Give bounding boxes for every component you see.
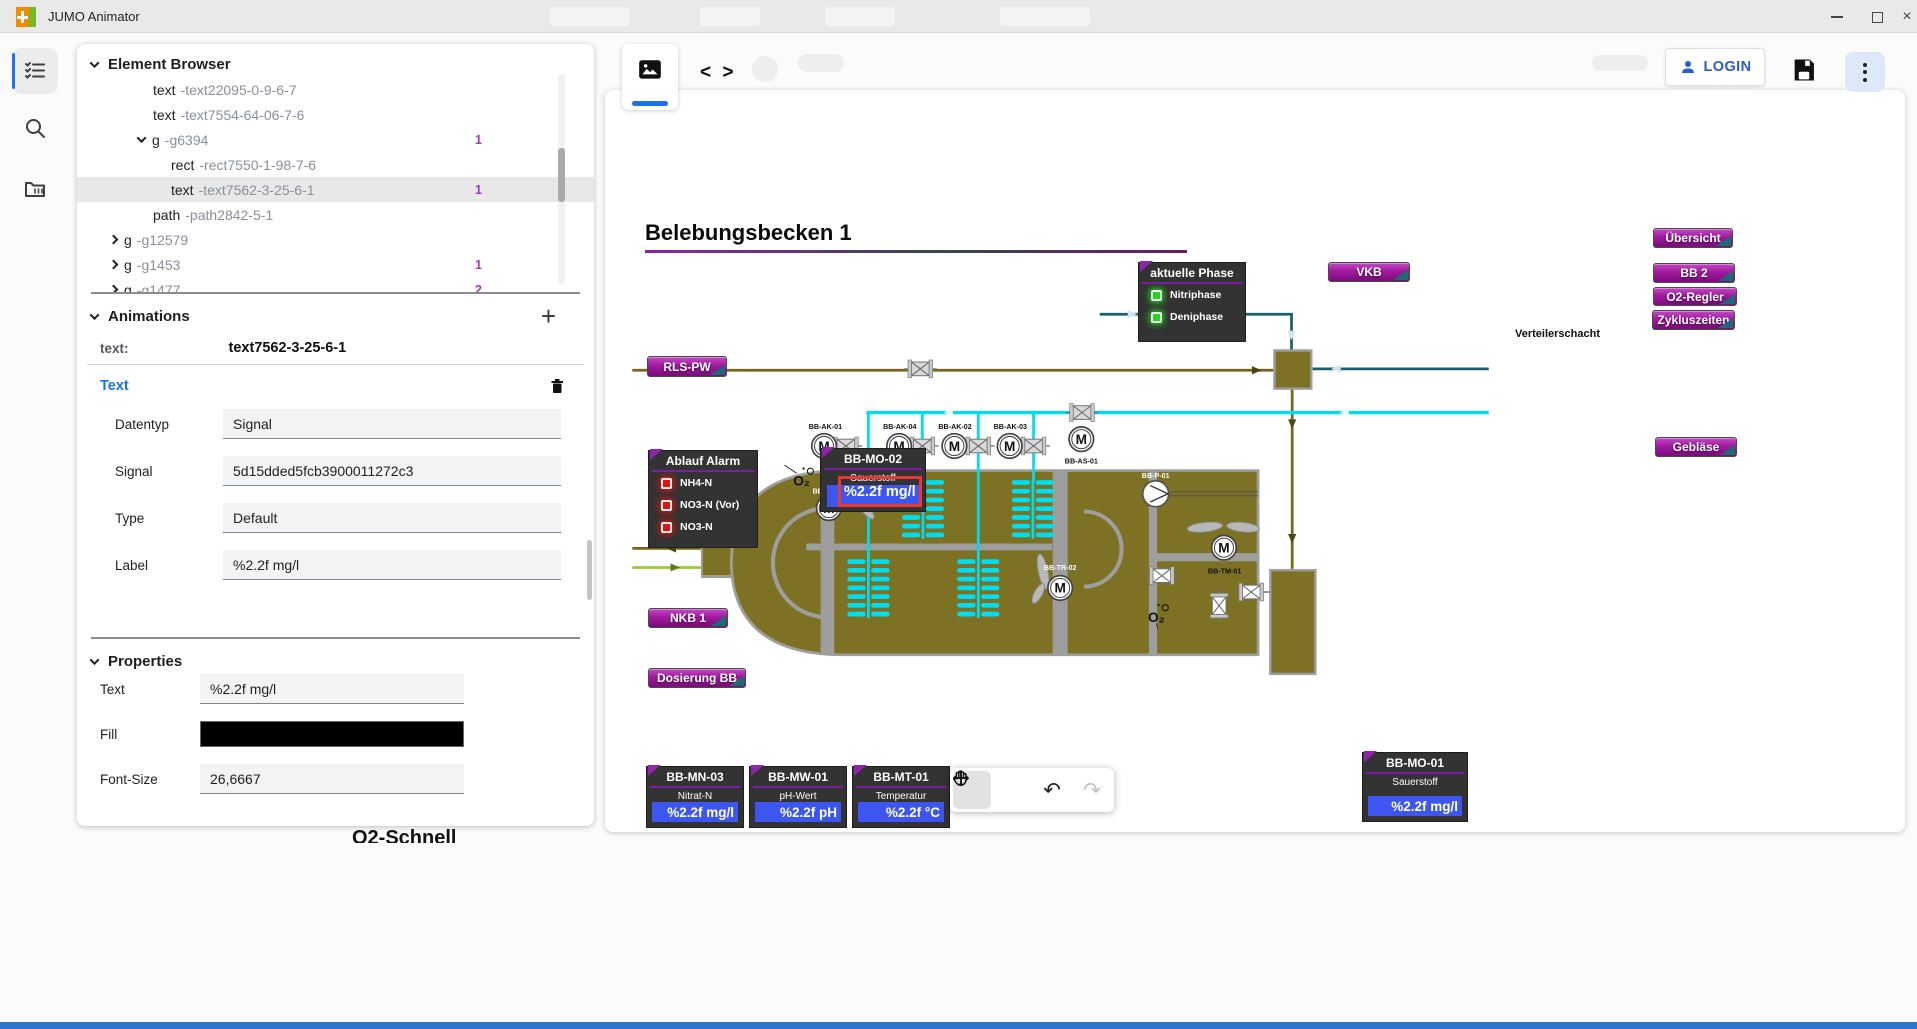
close-button[interactable]: ×	[1892, 5, 1917, 29]
property-text-row: Text	[77, 674, 594, 704]
nav-button-dosierung-bb[interactable]: Dosierung BB	[648, 668, 746, 688]
sensor-sub: Sauerstoff	[1363, 774, 1467, 788]
node-id: -path2842-5-1	[185, 207, 273, 223]
field-label: Signal	[77, 464, 223, 479]
element-browser-title: Element Browser	[108, 56, 231, 73]
add-animation-button[interactable]: +	[541, 306, 556, 326]
titlebar-ghost	[825, 7, 895, 26]
node-id: -rect7550-1-98-7-6	[199, 157, 316, 173]
node-tag: text	[171, 182, 194, 198]
nav-button--bersicht[interactable]: Übersicht	[1653, 228, 1733, 248]
sensor-sub: pH-Wert	[750, 788, 846, 802]
target-label: text:	[100, 341, 129, 356]
animation-group-row: Text	[100, 373, 594, 399]
led-red-icon	[661, 478, 672, 489]
inspector-panel: Element Browser text-text22095-0-9-6-7te…	[77, 44, 594, 826]
animation-fields: DatentypSignalTypeLabel	[77, 409, 594, 580]
tree-row-text-text22095-0-9-6-7[interactable]: text-text22095-0-9-6-7	[77, 77, 594, 102]
sensor-value: %2.2f pH	[755, 802, 841, 822]
chevron-right-icon[interactable]	[109, 235, 119, 245]
tree-row-g-g6394[interactable]: g-g63941	[77, 127, 594, 152]
properties-header[interactable]: Properties	[77, 649, 594, 674]
search-icon[interactable]	[23, 116, 47, 140]
valve-icon[interactable]	[1210, 589, 1228, 622]
sensor-sub: Nitrat-N	[647, 788, 743, 802]
animations-section: Animations + text: text7562-3-25-6-1 Tex…	[77, 294, 594, 637]
divider	[87, 364, 584, 365]
undo-button[interactable]: ↶	[1033, 771, 1071, 809]
kebab-icon	[1863, 63, 1867, 82]
node-id: -g6394	[165, 132, 209, 148]
phase-box-title: aktuelle Phase	[1142, 263, 1242, 284]
sensor-value: %2.2f mg/l	[652, 802, 738, 822]
title-underline	[645, 250, 1187, 253]
motor-bb-as-01[interactable]: M	[1069, 427, 1094, 452]
phase-status-box: aktuelle Phase NitriphaseDeniphase	[1138, 262, 1246, 342]
svg-text:O₂: O₂	[793, 474, 810, 489]
animation-count-badge: 1	[475, 183, 482, 197]
jumo-logo-icon	[16, 7, 36, 27]
nav-button-o2-regler[interactable]: O2-Regler	[1653, 287, 1737, 306]
animation-target-row: text: text7562-3-25-6-1	[100, 336, 594, 360]
equipment-label-bb-ak-03: BB-AK-03	[994, 423, 1027, 431]
field-input-label[interactable]	[223, 550, 561, 580]
property-label: Fill	[77, 727, 200, 742]
login-label: LOGIN	[1704, 59, 1752, 75]
animation-field-signal: Signal	[77, 456, 594, 486]
image-icon	[637, 57, 663, 83]
animation-group-link[interactable]: Text	[100, 378, 129, 394]
chevron-down-icon	[90, 310, 100, 320]
disabled-tool	[798, 54, 844, 72]
nav-button-nkb-1[interactable]: NKB 1	[648, 608, 728, 628]
nav-button-gebl-se[interactable]: Gebläse	[1655, 437, 1737, 457]
equipment-label-bb-p-01: BB-P-01	[1142, 472, 1170, 480]
svg-text:M: M	[949, 439, 960, 454]
verteilerschacht-box[interactable]	[1274, 350, 1311, 388]
sensor-sub: Temperatur	[853, 788, 949, 802]
chevron-right-icon[interactable]	[109, 285, 119, 292]
sensor-title: BB-MW-01	[753, 767, 843, 788]
tree-row-text-text7562-3-25-6-1[interactable]: text-text7562-3-25-6-11	[77, 177, 594, 202]
node-tag: g	[152, 132, 160, 148]
side-tank[interactable]	[1270, 570, 1315, 674]
property-fontsize-input[interactable]	[200, 764, 464, 794]
chevron-down-icon	[90, 655, 100, 665]
alarm-box-title: Ablauf Alarm	[652, 451, 754, 472]
sensor-title: BB-MT-01	[856, 767, 946, 788]
element-browser-header[interactable]: Element Browser	[77, 52, 594, 77]
disabled-tool	[1592, 55, 1648, 71]
equipment-label-bb-ak-02: BB-AK-02	[938, 423, 971, 431]
node-tag: path	[153, 207, 180, 223]
app-window: JUMO Animator × Element Browser text-tex…	[0, 0, 1917, 1029]
taskbar-edge	[0, 1022, 1917, 1029]
field-input-type[interactable]	[223, 503, 561, 533]
plant-diagram: MMMMMMMMO₂O₂BB-AK-01BB-AK-04BB-AK-02BB-A…	[605, 90, 1905, 832]
panel-scrollbar[interactable]	[587, 540, 592, 600]
field-label: Type	[77, 511, 223, 526]
sensor-value: %2.2f °C	[858, 802, 944, 822]
background-text-fragment: O2-Schnell	[352, 827, 522, 843]
sensor-value: %2.2f mg/l	[844, 484, 916, 500]
nav-button-zykluszeiten[interactable]: Zykluszeiten	[1652, 310, 1735, 330]
element-tree: text-text22095-0-9-6-7text-text7554-64-0…	[77, 77, 594, 292]
chevron-right-icon[interactable]	[109, 260, 119, 270]
property-label: Text	[77, 682, 200, 697]
svg-text:M: M	[1218, 540, 1229, 555]
equipment-label-bb-as-01: BB-AS-01	[1065, 458, 1098, 466]
phase-item-Nitriphase: Nitriphase	[1139, 284, 1245, 306]
properties-title: Properties	[108, 653, 182, 670]
node-tag: g	[124, 232, 132, 248]
minimize-button[interactable]	[1822, 5, 1852, 29]
valve-icon[interactable]	[1145, 567, 1178, 585]
svg-text:M: M	[1004, 439, 1015, 454]
chevron-down-icon	[90, 58, 100, 68]
titlebar-ghost	[700, 7, 760, 26]
tree-row-rect-rect7550-1-98-7-6[interactable]: rect-rect7550-1-98-7-6	[77, 152, 594, 177]
sensor-box-bb-mw-01[interactable]: BB-MW-01 pH-Wert %2.2f pH	[749, 766, 847, 828]
node-tag: rect	[171, 157, 194, 173]
titlebar-ghost	[550, 7, 630, 26]
property-label: Font-Size	[77, 772, 200, 787]
titlebar-ghost	[1000, 7, 1090, 26]
redo-button[interactable]: ↷	[1073, 771, 1111, 809]
led-red-icon	[661, 522, 672, 533]
move-tool[interactable]	[993, 771, 1031, 809]
nav-button-rls-pw[interactable]: RLS-PW	[647, 356, 727, 377]
property-fill-row: Fill	[77, 721, 594, 747]
node-id: -g1477	[137, 282, 181, 293]
delete-animation-icon[interactable]	[548, 377, 566, 395]
tree-row-g-g12579[interactable]: g-g12579	[77, 227, 594, 252]
alarm-list: NH4-NNO3-N (Vor)NO3-N	[649, 472, 757, 538]
valve-icon[interactable]	[1066, 404, 1099, 422]
node-tag: text	[153, 107, 176, 123]
animation-count-badge: 1	[475, 258, 482, 272]
svg-text:M: M	[1076, 432, 1087, 447]
alarm-status-box: Ablauf Alarm NH4-NNO3-N (Vor)NO3-N	[648, 450, 758, 548]
canvas-toolbar: ↶ ↷	[950, 768, 1114, 812]
led-green-icon	[1151, 312, 1162, 323]
equipment-label-bb-ak-04: BB-AK-04	[883, 423, 916, 431]
tree-row-g-g1453[interactable]: g-g14531	[77, 252, 594, 277]
code-view-icon[interactable]: < >	[700, 62, 736, 84]
sensor-title: BB-MO-02	[824, 449, 922, 470]
animation-count-badge: 1	[475, 133, 482, 147]
window-title: JUMO Animator	[48, 9, 140, 24]
property-text-input[interactable]	[200, 674, 464, 704]
field-input-datentyp[interactable]	[223, 409, 561, 439]
valve-icon[interactable]	[1235, 583, 1268, 601]
fill-swatch[interactable]	[200, 721, 464, 747]
led-red-icon	[661, 500, 672, 511]
element-browser-section: Element Browser text-text22095-0-9-6-7te…	[77, 44, 594, 292]
diagram-title: Belebungsbecken 1	[645, 220, 852, 246]
tree-row-text-text7554-64-06-7-6[interactable]: text-text7554-64-06-7-6	[77, 102, 594, 127]
login-button[interactable]: LOGIN	[1665, 48, 1765, 86]
node-id: -g1453	[137, 257, 181, 273]
motor-bb-tm-01[interactable]: M	[1212, 535, 1237, 560]
diagram-canvas[interactable]: MMMMMMMMO₂O₂BB-AK-01BB-AK-04BB-AK-02BB-A…	[605, 90, 1905, 832]
properties-section: Properties Text Fill Font-Size	[77, 639, 594, 794]
save-icon[interactable]	[1790, 56, 1818, 84]
nav-button-vkb[interactable]: VKB	[1328, 262, 1410, 282]
field-label: Datentyp	[77, 417, 223, 432]
motor-bb-ak-03[interactable]: M	[997, 434, 1022, 459]
equipment-label-bb-tr-02: BB-TR-02	[1044, 564, 1077, 572]
alarm-item-NO3-N (Vor): NO3-N (Vor)	[649, 494, 757, 516]
equipment-label-bb-ak-01: BB-AK-01	[809, 423, 842, 431]
node-id: -text7554-64-06-7-6	[181, 107, 305, 123]
sensor-box-bb-mn-03[interactable]: BB-MN-03 Nitrat-N %2.2f mg/l	[646, 766, 744, 828]
animations-header[interactable]: Animations +	[77, 304, 594, 328]
property-fontsize-row: Font-Size	[77, 764, 594, 794]
motor-bb-tr-02[interactable]: M	[1048, 576, 1073, 601]
rail-active-indicator	[12, 53, 15, 89]
library-icon[interactable]	[23, 176, 47, 200]
sensor-box-bb-mo-01[interactable]: BB-MO-01 Sauerstoff %2.2f mg/l	[1362, 752, 1468, 822]
verteilerschacht-label: Verteilerschacht	[1475, 328, 1600, 340]
more-menu-button[interactable]	[1845, 52, 1885, 92]
valve-icon[interactable]	[904, 360, 937, 378]
selected-element-highlight[interactable]: %2.2f mg/l	[838, 476, 922, 507]
node-tag: g	[124, 282, 132, 293]
nav-button-bb-2[interactable]: BB 2	[1653, 263, 1735, 283]
tree-row-g-g1477[interactable]: g-g14772	[77, 277, 594, 292]
chevron-down-icon[interactable]	[137, 133, 147, 143]
node-id: -text22095-0-9-6-7	[181, 82, 297, 98]
svg-text:O₂: O₂	[1148, 610, 1165, 625]
alarm-item-NO3-N: NO3-N	[649, 516, 757, 538]
tree-scrollbar[interactable]	[558, 148, 565, 202]
field-input-signal[interactable]	[223, 456, 561, 486]
motor-bb-ak-02[interactable]: M	[942, 434, 967, 459]
node-tag: g	[124, 257, 132, 273]
led-green-icon	[1151, 290, 1162, 301]
window-titlebar: JUMO Animator ×	[0, 0, 1917, 33]
node-id: -g12579	[137, 232, 188, 248]
field-label: Label	[77, 558, 223, 573]
sensor-title: BB-MN-03	[650, 767, 740, 788]
active-tab-indicator	[632, 101, 668, 106]
phase-item-Deniphase: Deniphase	[1139, 306, 1245, 328]
alarm-item-NH4-N: NH4-N	[649, 472, 757, 494]
element-browser-icon[interactable]	[23, 59, 47, 83]
pump-bb-p-01[interactable]	[1143, 481, 1169, 507]
target-value: text7562-3-25-6-1	[229, 340, 347, 356]
person-icon	[1679, 58, 1697, 76]
animations-title: Animations	[108, 308, 190, 325]
phase-list: NitriphaseDeniphase	[1139, 284, 1245, 328]
svg-text:M: M	[1054, 581, 1065, 596]
maximize-button[interactable]	[1862, 5, 1892, 29]
sensor-title: BB-MO-01	[1366, 753, 1464, 774]
animation-field-type: Type	[77, 503, 594, 533]
animation-count-badge: 2	[475, 283, 482, 293]
animation-field-label: Label	[77, 550, 594, 580]
node-id: -text7562-3-25-6-1	[199, 182, 315, 198]
animation-field-datentyp: Datentyp	[77, 409, 594, 439]
sensor-value: %2.2f mg/l	[1368, 796, 1462, 816]
tree-row-path-path2842-5-1[interactable]: path-path2842-5-1	[77, 202, 594, 227]
node-tag: text	[153, 82, 176, 98]
equipment-label-bb-tm-01: BB-TM-01	[1208, 568, 1241, 576]
tab-visual-editor[interactable]	[622, 44, 678, 110]
disabled-tool	[752, 56, 778, 82]
sensor-box-bb-mt-01[interactable]: BB-MT-01 Temperatur %2.2f °C	[852, 766, 950, 828]
